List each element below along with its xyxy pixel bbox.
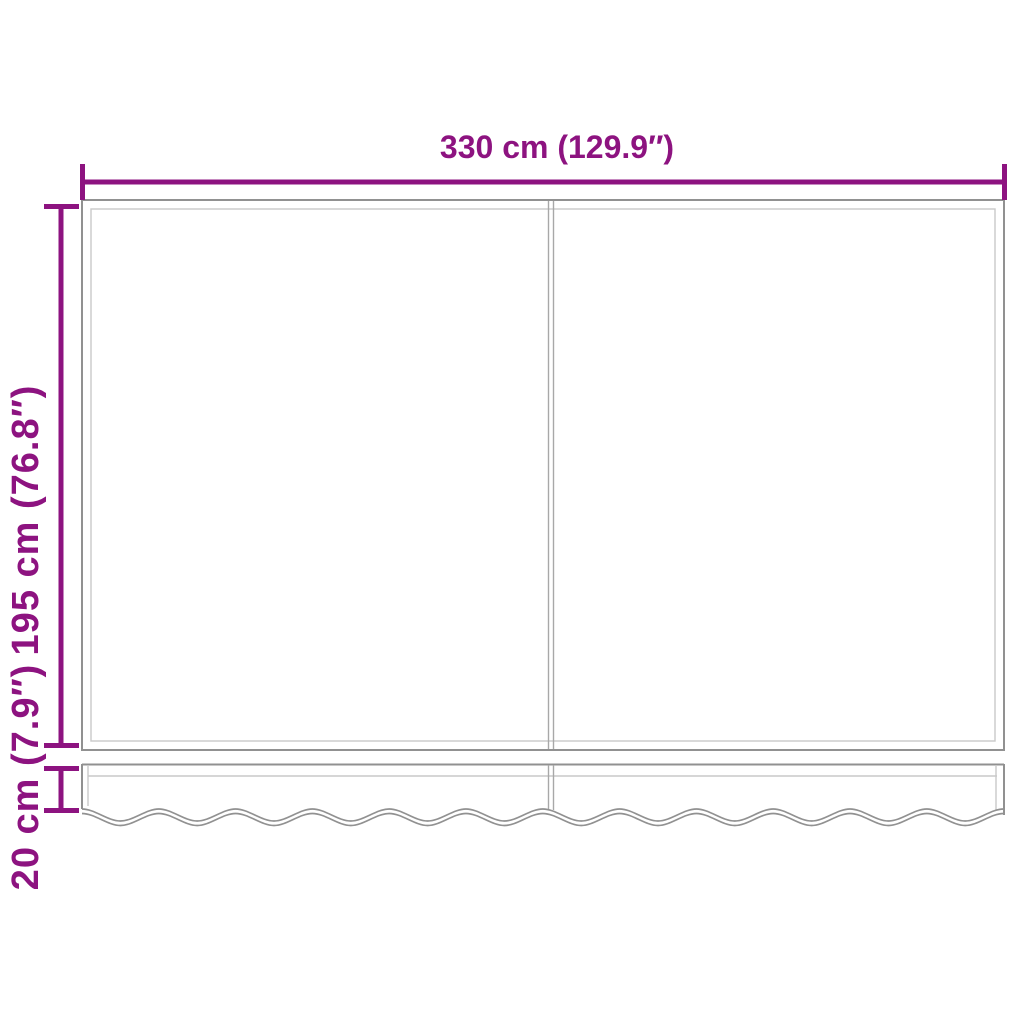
fabric-panel-inner-hem (91, 209, 995, 741)
diagram-canvas: 330 cm (129.9″) 195 cm (76.8″) 20 cm (7.… (0, 0, 1024, 1024)
fabric-drawing (82, 200, 1004, 815)
height-dimension-label: 195 cm (76.8″) (5, 385, 47, 656)
awning-dimension-diagram: 330 cm (129.9″) 195 cm (76.8″) 20 cm (7.… (0, 0, 1024, 1024)
dimension-lines (44, 164, 1005, 811)
fabric-hem-lines (88, 209, 997, 810)
width-dimension-label: 330 cm (129.9″) (440, 129, 674, 165)
fabric-panel-outline (82, 200, 1004, 750)
valance-dimension-label: 20 cm (7.9″) (5, 664, 47, 891)
valance-wave-lower-line (82, 814, 1004, 826)
valance-wave-edge (82, 809, 1004, 826)
fabric-seams (549, 201, 554, 810)
valance-wave-upper-line (82, 809, 1004, 821)
